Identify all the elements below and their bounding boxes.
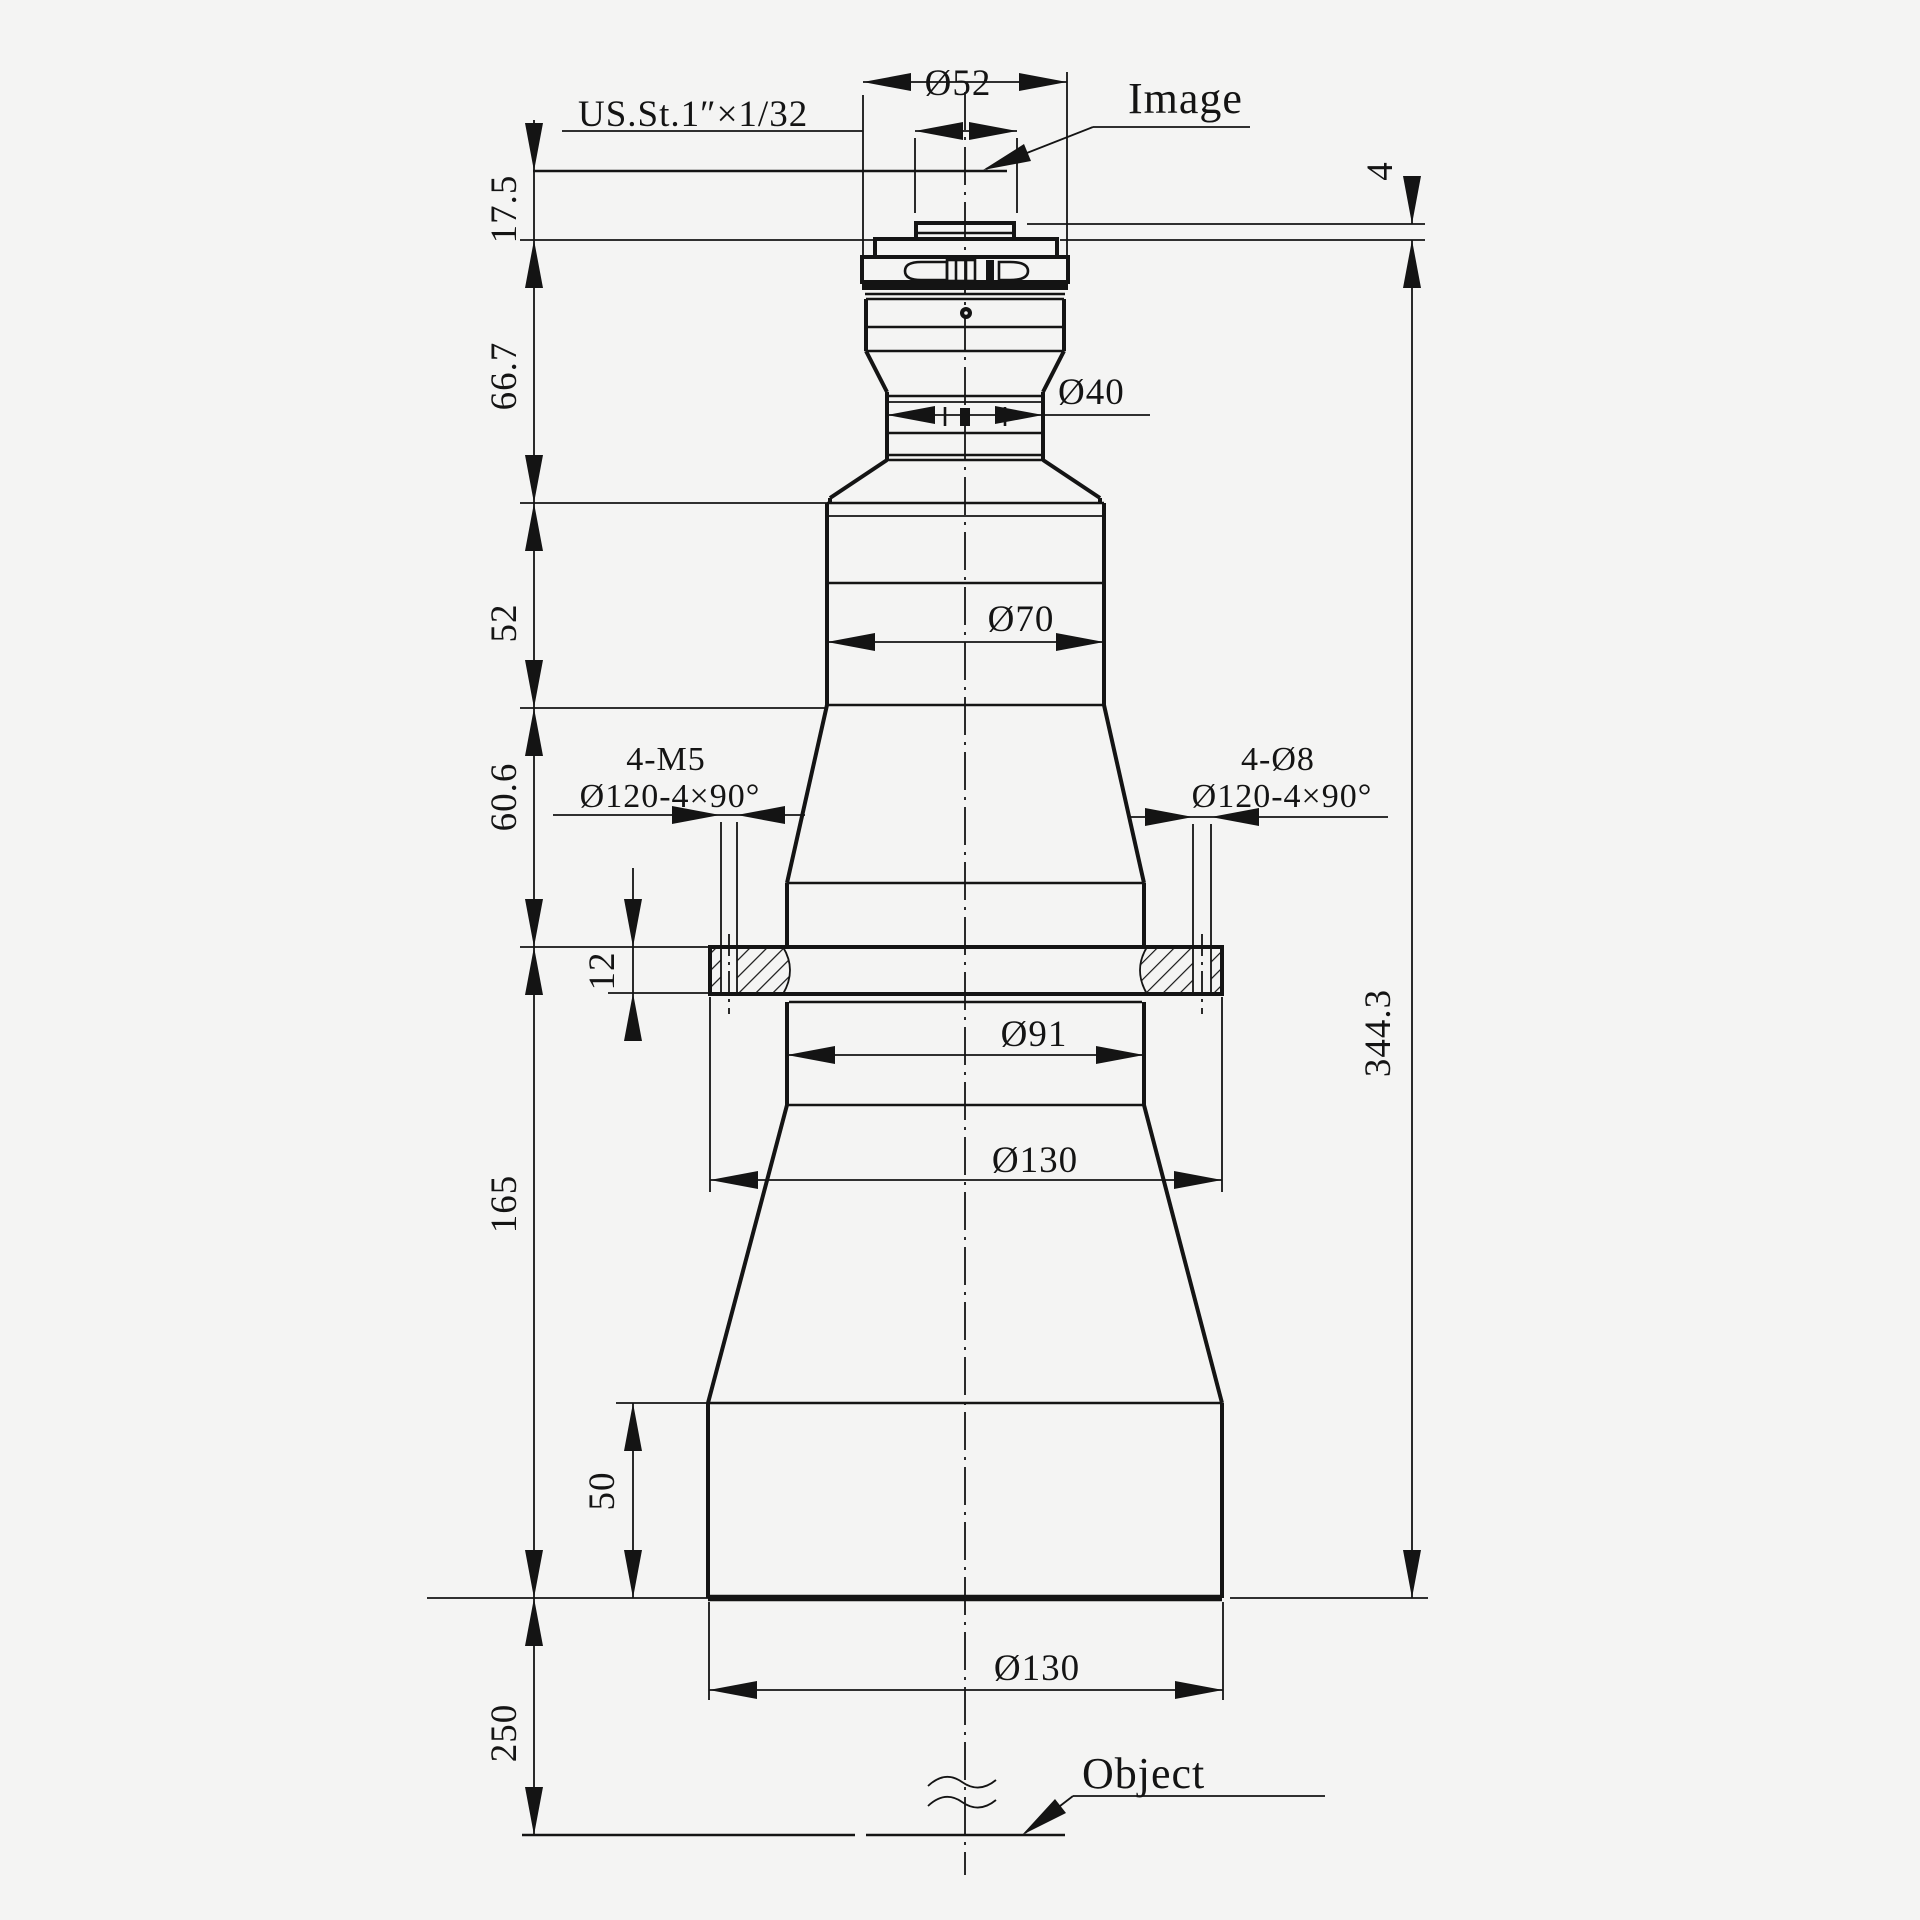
flange-hatch-right-inner bbox=[1140, 947, 1193, 994]
dim-label-17-5: 17.5 bbox=[484, 175, 525, 244]
object-label: Object bbox=[1082, 1749, 1205, 1798]
dim-label-66-7: 66.7 bbox=[484, 342, 525, 411]
image-label: Image bbox=[1128, 74, 1243, 123]
dim-label-165: 165 bbox=[484, 1175, 525, 1234]
thread-label: US.St.1″×1/32 bbox=[578, 94, 808, 135]
dim-label-12: 12 bbox=[582, 952, 623, 991]
flange-hatch-left-outer bbox=[710, 947, 721, 994]
callout-left-circle: Ø120-4×90° bbox=[580, 778, 761, 815]
flange-hatch-right-outer bbox=[1211, 947, 1222, 994]
flange-hatch-left-inner bbox=[737, 947, 790, 994]
dim-label-dia130-base: Ø130 bbox=[994, 1648, 1080, 1689]
dim-label-dia130-mid: Ø130 bbox=[992, 1140, 1078, 1181]
dim-label-50: 50 bbox=[582, 1472, 623, 1511]
dim-label-dia91: Ø91 bbox=[1001, 1014, 1068, 1055]
callout-left-count: 4-M5 bbox=[626, 741, 706, 778]
lens-outline-drawing: Ø52 Image US.St.1″×1/32 17. bbox=[0, 0, 1920, 1920]
dim-label-344-3: 344.3 bbox=[1358, 989, 1399, 1077]
dim-label-dia52: Ø52 bbox=[925, 63, 992, 104]
callout-right-circle: Ø120-4×90° bbox=[1192, 778, 1373, 815]
dim-label-4: 4 bbox=[1360, 161, 1401, 181]
callout-right-count: 4-Ø8 bbox=[1241, 741, 1315, 778]
dim-label-dia40: Ø40 bbox=[1058, 372, 1125, 413]
dim-label-52: 52 bbox=[484, 604, 525, 643]
dim-label-60-6: 60.6 bbox=[484, 763, 525, 832]
dim-label-250: 250 bbox=[484, 1704, 525, 1763]
dim-label-dia70: Ø70 bbox=[988, 599, 1055, 640]
